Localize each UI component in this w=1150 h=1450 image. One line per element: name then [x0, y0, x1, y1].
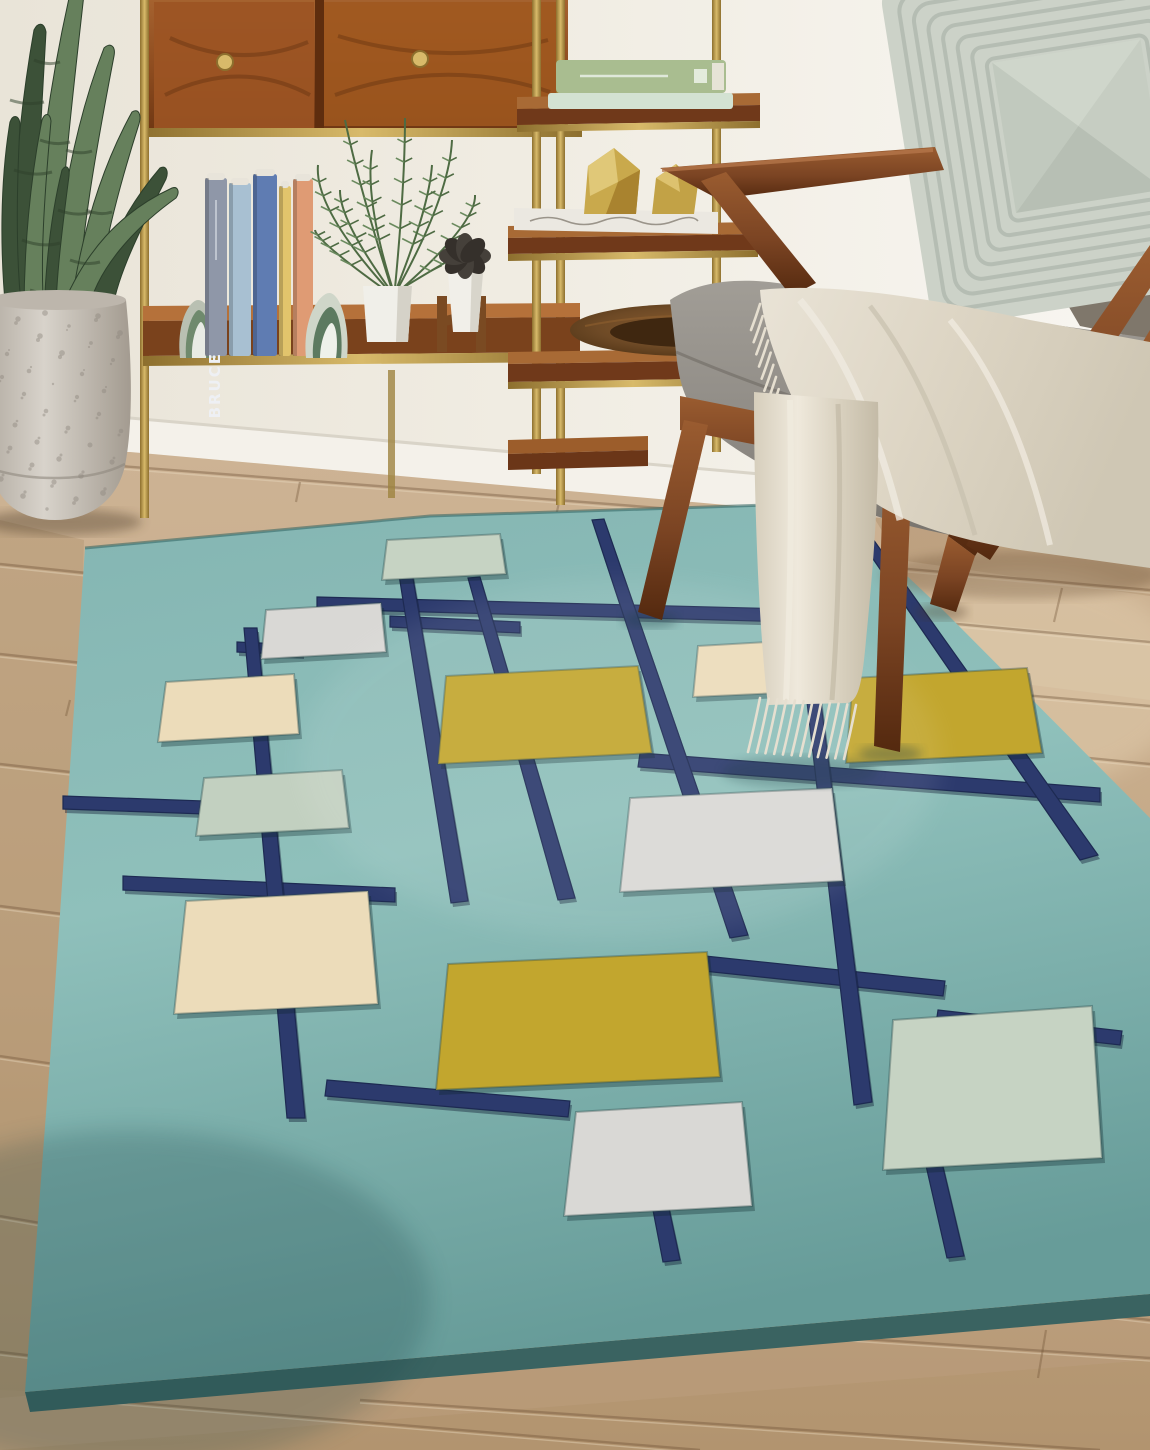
book-spine-title: BRUCE: [206, 352, 224, 418]
book-pages-top: [295, 174, 311, 181]
speckle: [88, 443, 93, 448]
book-spine-shade: [205, 178, 209, 356]
book-spine-shade: [253, 174, 257, 356]
speckle: [28, 467, 31, 470]
cabinet-brass-rail: [140, 128, 582, 137]
speckle: [50, 484, 54, 488]
speckle: [51, 479, 56, 484]
speckle: [2, 474, 5, 477]
scene-canvas: Living room corner with a teal mid-centu…: [0, 0, 1150, 1450]
shelf-brass-leg-rear: [388, 370, 395, 498]
rug-square-seafoam-bottom: [883, 1006, 1102, 1170]
shelf-brass-leg: [140, 0, 149, 518]
book-mint: [548, 93, 733, 109]
speckle: [37, 333, 43, 339]
speckle: [23, 490, 26, 493]
book-spine: [279, 181, 291, 356]
speckle: [16, 420, 19, 423]
speckle: [0, 375, 4, 379]
speckle: [8, 446, 13, 451]
book-spine-shade: [229, 183, 233, 356]
drawer-left: [154, 2, 314, 128]
rug-square-yellow-bottom: [436, 952, 720, 1090]
speckle: [74, 400, 77, 403]
book-pages-top: [231, 178, 249, 185]
speckle: [30, 366, 32, 368]
speckle: [22, 392, 26, 396]
speckle: [21, 397, 24, 400]
speckle: [72, 501, 76, 505]
speckle: [6, 450, 9, 453]
speckle: [103, 487, 106, 490]
concrete-planter: [0, 300, 131, 520]
drawer-knob: [217, 54, 233, 70]
speckle: [38, 437, 41, 440]
speckle: [20, 493, 26, 499]
speckle: [30, 463, 35, 468]
drawer-knob: [412, 51, 428, 67]
book-spine: [229, 178, 251, 356]
speckle: [43, 414, 46, 417]
speckle: [110, 363, 112, 365]
speckle: [118, 434, 121, 437]
drawer-divider: [315, 0, 324, 130]
speckle: [59, 350, 65, 356]
speckle: [105, 386, 107, 388]
speckle: [88, 346, 90, 348]
speckle: [34, 439, 39, 444]
speckle: [42, 310, 48, 316]
speckle: [109, 459, 114, 464]
speckle: [111, 358, 115, 362]
speckle: [44, 409, 49, 414]
speckle: [66, 426, 71, 431]
speckle: [78, 473, 84, 479]
book-spine-shade: [293, 179, 297, 356]
speckle: [81, 470, 84, 473]
speckle: [27, 369, 32, 374]
living-room-photo: Living room corner with a teal mid-centu…: [0, 0, 1150, 1450]
rug-square-cream-bottom: [174, 891, 378, 1014]
speckle: [14, 321, 18, 325]
throw-shadow: [722, 756, 878, 788]
book-pages-top: [255, 169, 275, 176]
speckle: [89, 341, 93, 345]
book-spine: BRUCE: [205, 173, 227, 418]
speckle: [45, 507, 48, 510]
book-spine: [253, 169, 277, 356]
speckle: [102, 389, 107, 394]
speckle: [83, 369, 85, 371]
green-book-stack: [548, 60, 733, 109]
speckle: [100, 490, 106, 496]
speckle: [66, 329, 68, 331]
speckle: [117, 330, 123, 336]
speckle: [56, 456, 61, 461]
area-rug: [0, 503, 1150, 1450]
speckle: [52, 383, 54, 385]
rug-square-white-bottom: [564, 1102, 752, 1216]
book-pages-top: [207, 173, 225, 180]
speckle: [80, 372, 84, 376]
book-green-logo: [694, 69, 707, 83]
rug-square-cream-left: [158, 674, 299, 742]
speckle: [113, 457, 116, 460]
speckle: [60, 454, 63, 457]
rug-square-seafoam-top: [382, 534, 506, 580]
speckle: [95, 313, 101, 319]
speckle: [73, 496, 78, 501]
speckle: [119, 429, 124, 434]
throw-tail: [754, 392, 878, 705]
speckle: [75, 395, 79, 399]
speckle: [13, 423, 18, 428]
speckle: [96, 417, 99, 420]
speckle: [97, 412, 101, 416]
book-green-pages: [712, 63, 724, 90]
succulent-leaves: [439, 233, 491, 279]
speckle: [5, 352, 9, 356]
speckle: [64, 430, 67, 433]
speckle: [15, 316, 20, 321]
speckle: [67, 324, 71, 328]
speckle: [8, 349, 10, 351]
book-spine-shade: [279, 186, 283, 356]
